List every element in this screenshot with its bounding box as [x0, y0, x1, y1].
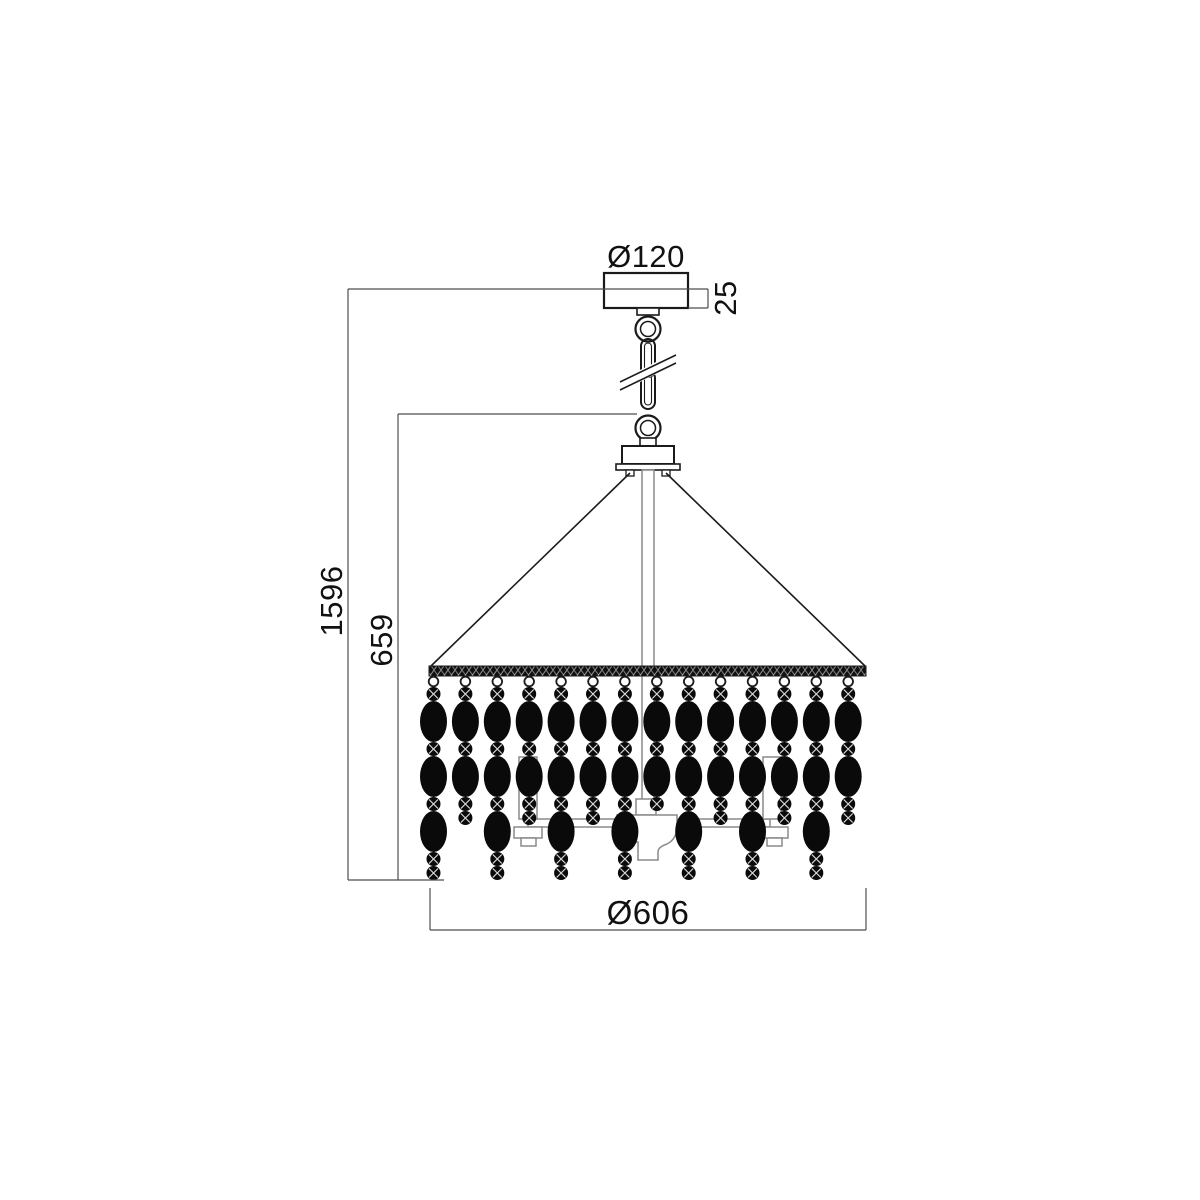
- arm-cup-left-tip: [521, 838, 536, 846]
- bead-strand: [548, 677, 575, 880]
- arm-cup-left: [514, 827, 542, 838]
- ceiling-canopy: [604, 273, 688, 315]
- support-wire-right: [666, 473, 865, 666]
- overall-height-label: 1596: [314, 566, 349, 637]
- canopy-diameter-label: Ø120: [607, 239, 685, 274]
- drawing-page: Ø120 25 1596 659 Ø606: [0, 0, 1200, 1200]
- arm-cup-right-tip: [767, 838, 782, 846]
- bead-strand: [675, 677, 702, 880]
- bead-strand: [835, 677, 862, 825]
- bead-strand: [739, 677, 766, 880]
- bead-strand: [420, 677, 447, 880]
- hanging-chain: [620, 317, 676, 441]
- bead-strand: [707, 677, 734, 825]
- bead-strand: [803, 677, 830, 880]
- canopy-height-label: 25: [708, 280, 743, 315]
- bead-strand: [452, 677, 479, 825]
- bead-strand: [611, 677, 638, 880]
- bead-strand: [580, 677, 607, 825]
- body-height-label: 659: [364, 613, 399, 666]
- body-diameter-label: Ø606: [607, 894, 690, 931]
- bead-strand: [484, 677, 511, 880]
- rim-band: [429, 666, 866, 676]
- chandelier-technical-drawing: Ø120 25 1596 659 Ø606: [0, 0, 1200, 1200]
- support-wire-left: [431, 473, 630, 666]
